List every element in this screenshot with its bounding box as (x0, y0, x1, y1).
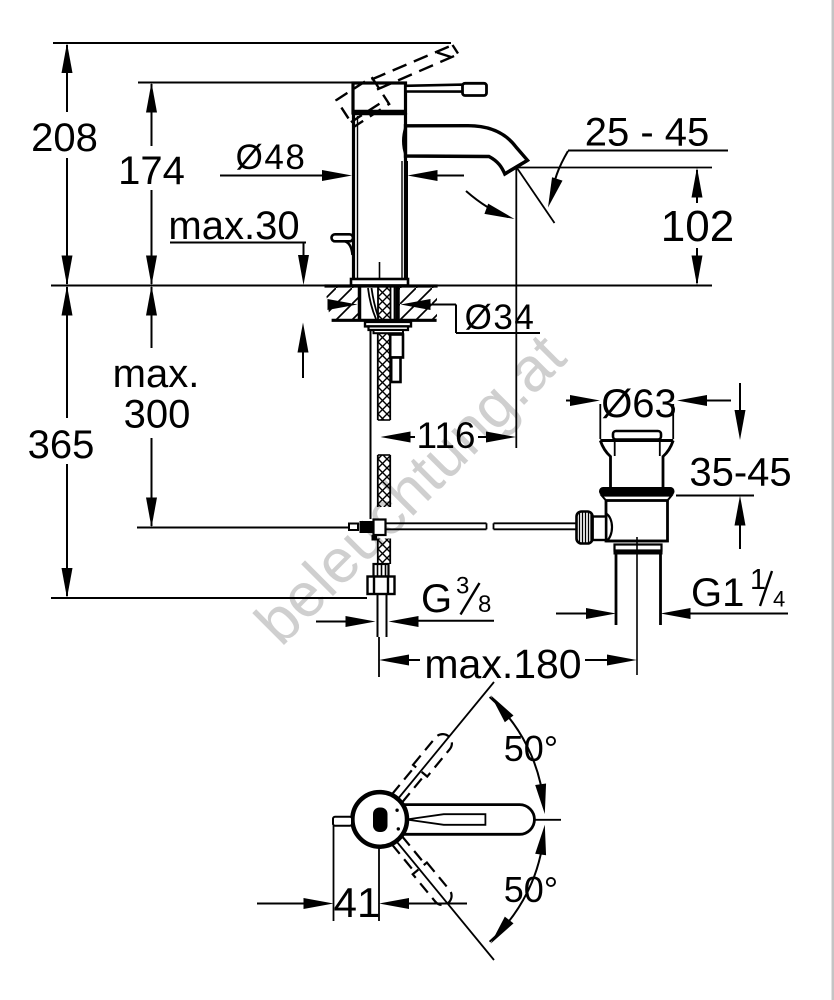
svg-text:41: 41 (334, 879, 381, 926)
svg-text:max.: max. (113, 352, 200, 396)
svg-text:300: 300 (124, 393, 191, 437)
svg-text:50°: 50° (504, 728, 558, 769)
svg-text:1: 1 (750, 564, 766, 596)
svg-text:35-45: 35-45 (689, 451, 791, 495)
svg-text:116: 116 (417, 415, 476, 456)
svg-text:G: G (421, 577, 452, 621)
svg-text:208: 208 (31, 116, 98, 160)
svg-text:174: 174 (118, 149, 185, 193)
svg-text:25 - 45: 25 - 45 (585, 111, 710, 155)
svg-text:G1: G1 (691, 571, 744, 615)
svg-text:max.180: max.180 (424, 641, 581, 687)
svg-text:3: 3 (456, 573, 469, 600)
svg-text:4: 4 (773, 587, 785, 612)
svg-text:8: 8 (478, 591, 491, 618)
svg-text:max.30: max.30 (168, 204, 299, 248)
svg-text:Ø63: Ø63 (601, 382, 677, 426)
svg-text:365: 365 (28, 423, 95, 467)
svg-text:50°: 50° (504, 869, 558, 910)
svg-text:102: 102 (661, 202, 734, 251)
svg-text:Ø34: Ø34 (465, 298, 536, 337)
svg-text:Ø48: Ø48 (236, 138, 307, 177)
